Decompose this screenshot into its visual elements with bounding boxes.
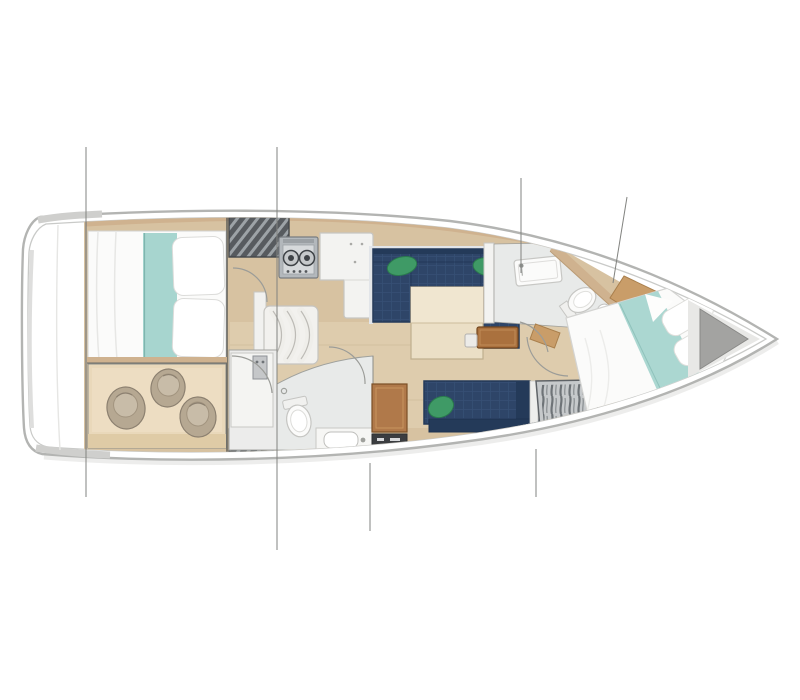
aft-pillow-2 <box>172 298 225 358</box>
aft-cabin-divider-trim <box>87 357 227 363</box>
interior <box>84 208 760 462</box>
aft-storage <box>88 364 226 448</box>
aft-pillow-1 <box>172 236 225 296</box>
salon-table-top-panel <box>411 287 483 323</box>
nav-desk <box>372 384 407 445</box>
transom-inner-line <box>30 250 32 428</box>
aft-berth-teal-runner <box>143 233 177 361</box>
floor-plan-canvas <box>0 0 800 700</box>
boat-floor-plan <box>0 0 800 700</box>
forward-head-door <box>484 243 494 323</box>
stove <box>279 237 318 278</box>
table-leaf-latch <box>465 334 477 347</box>
starboard-settee <box>424 381 539 432</box>
